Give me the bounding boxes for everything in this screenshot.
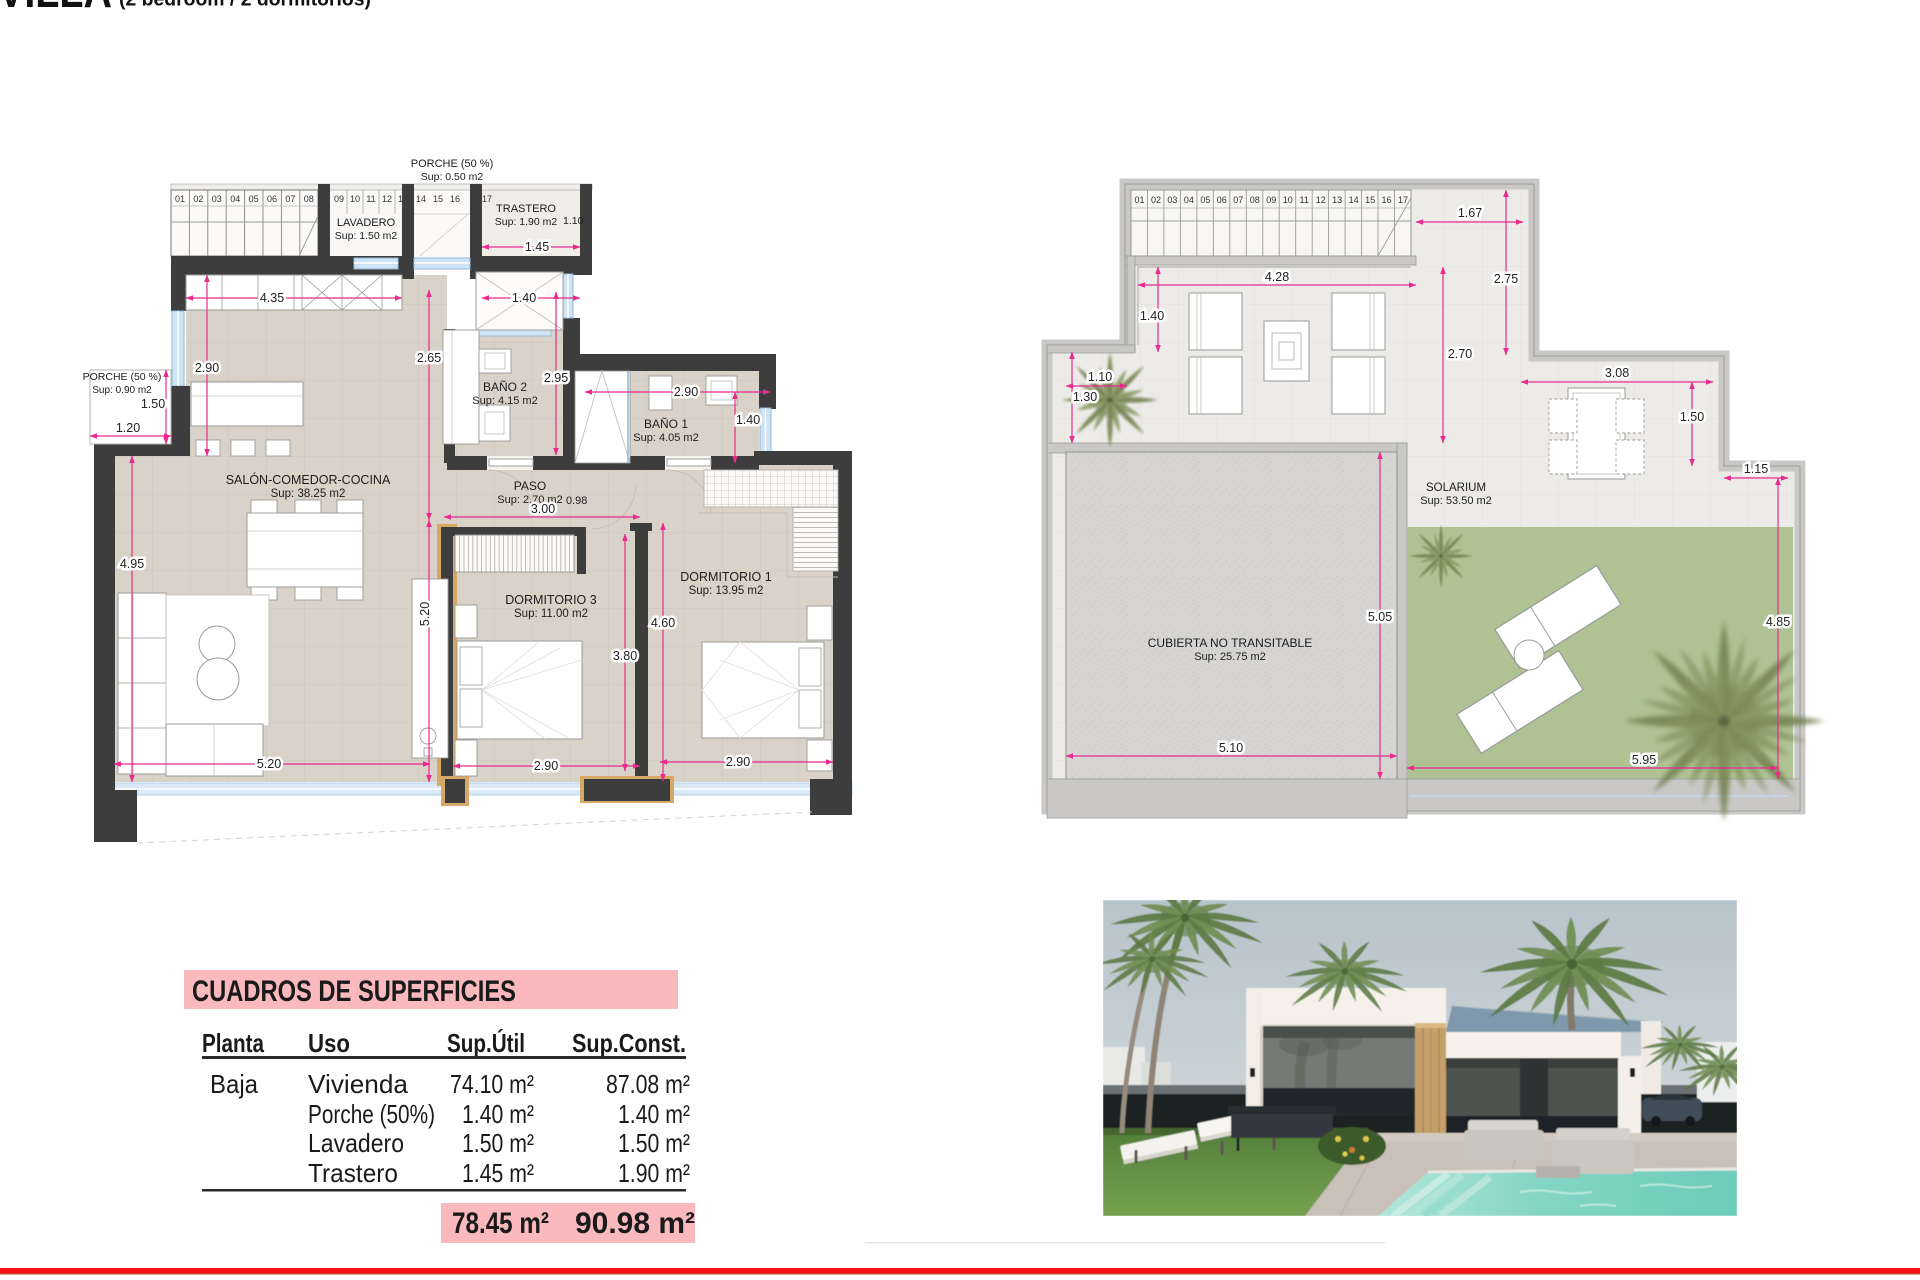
svg-text:08: 08 <box>304 194 314 204</box>
svg-text:Sup: 53.50 m2: Sup: 53.50 m2 <box>1420 495 1492 507</box>
svg-text:2.90: 2.90 <box>195 361 219 375</box>
svg-text:14: 14 <box>416 194 426 204</box>
svg-text:1.10: 1.10 <box>1088 370 1112 384</box>
svg-text:Uso: Uso <box>308 1028 350 1058</box>
svg-text:Vivienda: Vivienda <box>308 1069 409 1099</box>
svg-text:2.95: 2.95 <box>544 371 568 385</box>
svg-text:1.10: 1.10 <box>563 215 584 227</box>
svg-text:3.80: 3.80 <box>613 649 637 663</box>
svg-text:Sup: 0.50 m2: Sup: 0.50 m2 <box>421 171 484 183</box>
svg-text:Sup: 1.90 m2: Sup: 1.90 m2 <box>495 216 558 228</box>
svg-text:PORCHE (50 %): PORCHE (50 %) <box>411 158 494 170</box>
svg-text:2.90: 2.90 <box>726 755 750 769</box>
svg-text:10: 10 <box>1283 195 1293 205</box>
svg-text:1.67: 1.67 <box>1458 206 1482 220</box>
svg-text:04: 04 <box>230 194 240 204</box>
svg-text:DORMITORIO 1: DORMITORIO 1 <box>680 570 771 584</box>
svg-text:Sup: 38.25 m2: Sup: 38.25 m2 <box>271 488 346 500</box>
svg-text:Sup: 0.90 m2: Sup: 0.90 m2 <box>92 385 152 396</box>
svg-text:3.00: 3.00 <box>531 502 555 516</box>
svg-text:05: 05 <box>1200 195 1210 205</box>
svg-text:1.50 m²: 1.50 m² <box>462 1128 534 1158</box>
svg-text:90.98 m²: 90.98 m² <box>575 1207 695 1240</box>
svg-text:5.95: 5.95 <box>1632 753 1656 767</box>
svg-text:16: 16 <box>450 194 460 204</box>
svg-text:17: 17 <box>482 194 492 204</box>
svg-text:1.40: 1.40 <box>736 413 760 427</box>
svg-text:1.30: 1.30 <box>1073 390 1097 404</box>
svg-text:Planta: Planta <box>202 1028 264 1058</box>
svg-text:LAVADERO: LAVADERO <box>337 217 396 229</box>
svg-text:Sup: 4.05 m2: Sup: 4.05 m2 <box>633 432 698 444</box>
svg-text:10: 10 <box>350 194 360 204</box>
svg-text:(2 bedroom / 2 dormitorios): (2 bedroom / 2 dormitorios) <box>119 0 371 11</box>
svg-text:5.10: 5.10 <box>1219 741 1243 755</box>
svg-text:5.20: 5.20 <box>257 757 281 771</box>
svg-text:2.90: 2.90 <box>674 385 698 399</box>
svg-text:5.05: 5.05 <box>1368 610 1392 624</box>
svg-text:PASO: PASO <box>514 479 546 493</box>
svg-text:05: 05 <box>249 194 259 204</box>
svg-text:VILLA: VILLA <box>0 0 112 17</box>
svg-text:1.50 m²: 1.50 m² <box>618 1128 690 1158</box>
svg-text:02: 02 <box>1151 195 1161 205</box>
svg-text:2.65: 2.65 <box>417 351 441 365</box>
svg-text:1.40: 1.40 <box>512 291 536 305</box>
svg-text:Lavadero: Lavadero <box>308 1128 404 1158</box>
svg-text:06: 06 <box>267 194 277 204</box>
svg-text:1.15: 1.15 <box>1744 462 1768 476</box>
svg-text:Sup: 1.50 m2: Sup: 1.50 m2 <box>335 230 398 242</box>
svg-text:2.90: 2.90 <box>534 759 558 773</box>
svg-text:CUBIERTA NO TRANSITABLE: CUBIERTA NO TRANSITABLE <box>1148 636 1312 650</box>
svg-text:07: 07 <box>285 194 295 204</box>
svg-text:09: 09 <box>1266 195 1276 205</box>
svg-text:1.20: 1.20 <box>116 421 140 435</box>
svg-text:BAÑO 1: BAÑO 1 <box>644 417 688 431</box>
svg-text:2.70: 2.70 <box>1448 347 1472 361</box>
svg-text:Sup: 11.00 m2: Sup: 11.00 m2 <box>514 608 588 620</box>
svg-text:4.35: 4.35 <box>260 291 284 305</box>
svg-text:04: 04 <box>1184 195 1194 205</box>
svg-text:74.10 m²: 74.10 m² <box>450 1069 534 1099</box>
svg-text:11: 11 <box>366 194 375 204</box>
svg-text:1.40: 1.40 <box>1140 309 1164 323</box>
svg-text:01: 01 <box>175 194 185 204</box>
svg-text:17: 17 <box>1398 195 1408 205</box>
svg-text:SALÓN-COMEDOR-COCINA: SALÓN-COMEDOR-COCINA <box>226 472 391 487</box>
svg-text:06: 06 <box>1217 195 1227 205</box>
svg-text:11: 11 <box>1300 195 1309 205</box>
svg-text:87.08 m²: 87.08 m² <box>606 1069 690 1099</box>
svg-text:SOLARIUM: SOLARIUM <box>1426 482 1486 494</box>
svg-text:Sup: 13.95 m2: Sup: 13.95 m2 <box>689 585 764 597</box>
svg-text:Porche (50%): Porche (50%) <box>308 1099 435 1129</box>
svg-text:1.50: 1.50 <box>141 397 165 411</box>
svg-text:Baja: Baja <box>210 1069 258 1099</box>
svg-text:03: 03 <box>212 194 222 204</box>
svg-text:Trastero: Trastero <box>308 1158 398 1188</box>
svg-text:Sup: 25.75 m2: Sup: 25.75 m2 <box>1194 651 1266 663</box>
svg-text:14: 14 <box>1349 195 1359 205</box>
svg-text:13: 13 <box>1332 195 1342 205</box>
svg-text:TRASTERO: TRASTERO <box>496 203 556 215</box>
svg-text:Sup.Útil: Sup.Útil <box>447 1028 525 1058</box>
svg-text:16: 16 <box>1381 195 1391 205</box>
svg-text:3.08: 3.08 <box>1605 366 1629 380</box>
svg-text:Sup.Const.: Sup.Const. <box>572 1028 686 1058</box>
svg-text:78.45 m²: 78.45 m² <box>452 1207 549 1240</box>
svg-text:12: 12 <box>382 194 392 204</box>
svg-text:15: 15 <box>1365 195 1375 205</box>
svg-text:PORCHE (50 %): PORCHE (50 %) <box>83 371 162 383</box>
svg-text:4.85: 4.85 <box>1766 615 1790 629</box>
svg-text:4.95: 4.95 <box>120 557 144 571</box>
svg-text:1.40 m²: 1.40 m² <box>462 1099 534 1129</box>
svg-text:07: 07 <box>1233 195 1243 205</box>
svg-text:Sup: 4.15 m2: Sup: 4.15 m2 <box>472 395 537 407</box>
svg-text:1.90 m²: 1.90 m² <box>618 1158 690 1188</box>
svg-text:1.40 m²: 1.40 m² <box>618 1099 690 1129</box>
svg-text:08: 08 <box>1250 195 1260 205</box>
svg-text:12: 12 <box>1316 195 1326 205</box>
svg-text:5.20: 5.20 <box>418 602 432 626</box>
svg-text:15: 15 <box>433 194 443 204</box>
svg-text:CUADROS DE SUPERFICIES: CUADROS DE SUPERFICIES <box>192 975 516 1008</box>
svg-text:DORMITORIO 3: DORMITORIO 3 <box>505 593 596 607</box>
svg-text:4.60: 4.60 <box>651 616 675 630</box>
svg-text:1.50: 1.50 <box>1680 410 1704 424</box>
svg-text:03: 03 <box>1167 195 1177 205</box>
svg-text:0.98: 0.98 <box>566 495 587 507</box>
svg-text:09: 09 <box>334 194 344 204</box>
svg-text:01: 01 <box>1134 195 1144 205</box>
svg-text:1.45: 1.45 <box>525 240 549 254</box>
svg-text:02: 02 <box>193 194 203 204</box>
svg-text:BAÑO 2: BAÑO 2 <box>483 380 527 394</box>
svg-text:1.45 m²: 1.45 m² <box>462 1158 534 1188</box>
svg-text:2.75: 2.75 <box>1494 272 1518 286</box>
svg-text:4.28: 4.28 <box>1265 270 1289 284</box>
